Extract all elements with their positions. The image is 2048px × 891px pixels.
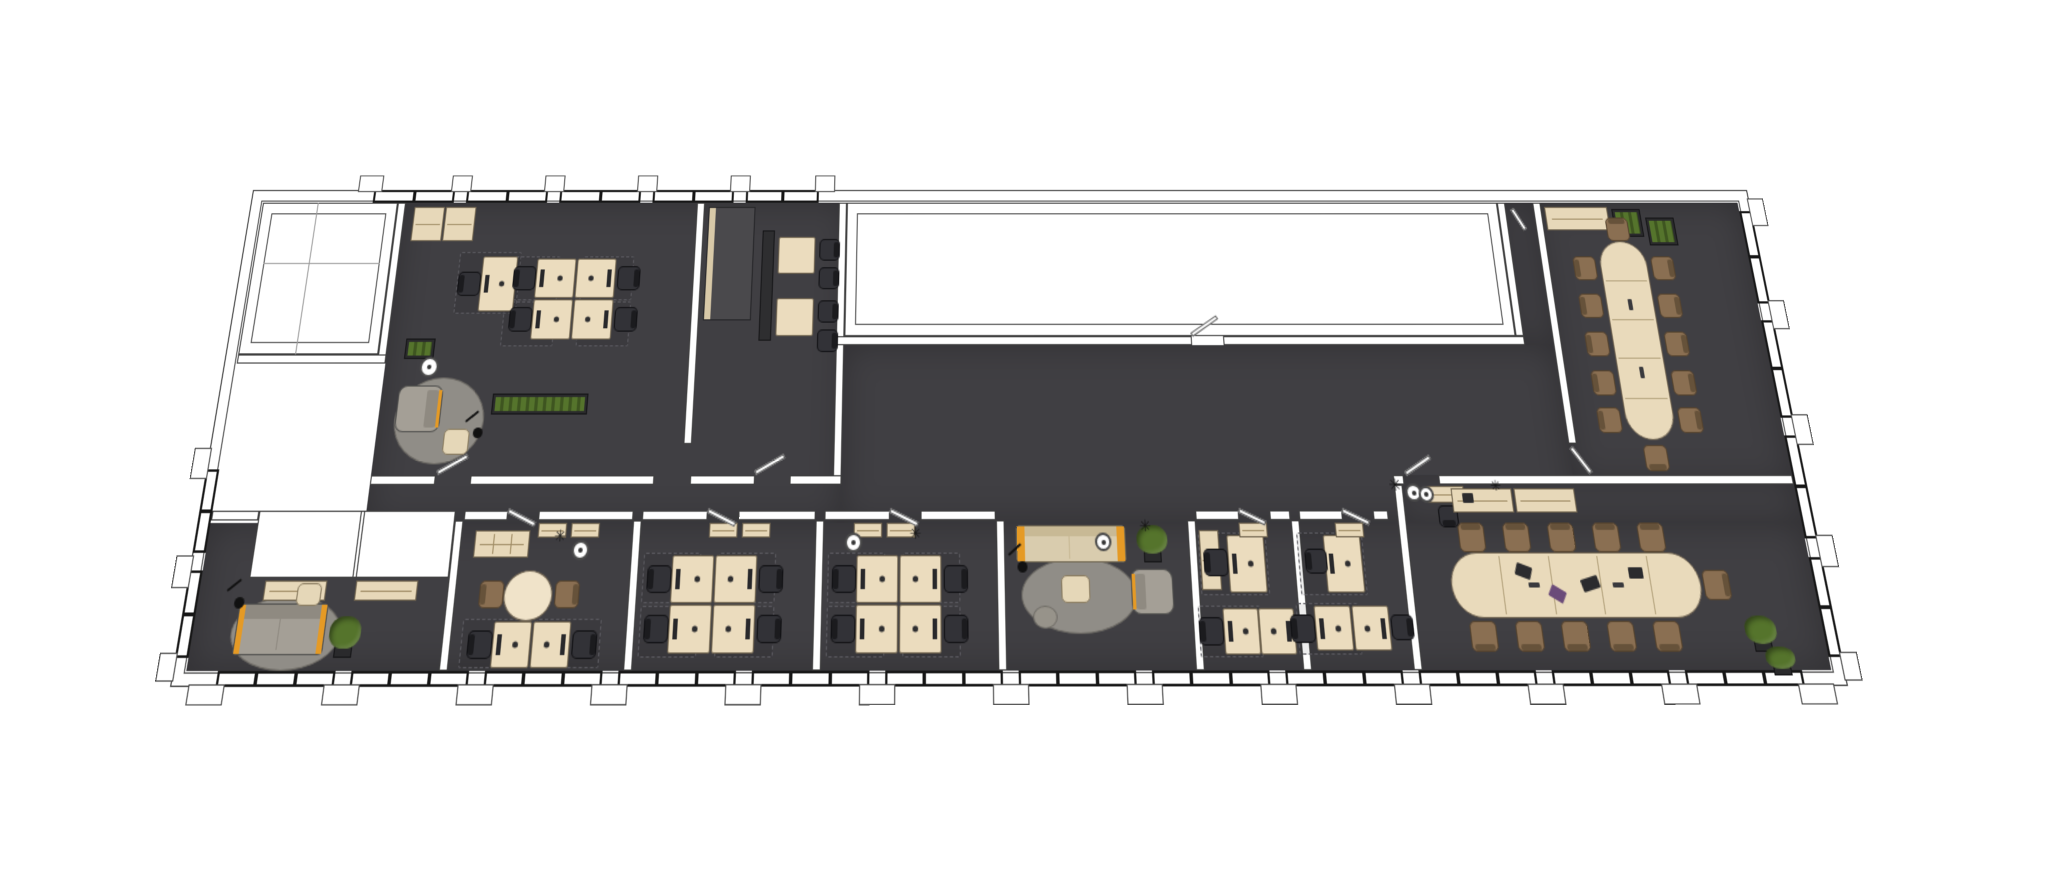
desk-part <box>933 569 937 589</box>
desk <box>713 555 757 603</box>
window-sill <box>1394 684 1433 705</box>
desk-part <box>880 576 886 582</box>
window-part <box>352 674 389 685</box>
desk-part <box>560 634 566 655</box>
desk <box>667 605 712 654</box>
window <box>215 671 335 687</box>
office-chair-part <box>962 619 968 640</box>
cabinet-part <box>1521 500 1570 501</box>
sofa-part <box>238 605 327 620</box>
ceiling-fixture-icon: ✳ <box>1138 518 1153 534</box>
desk <box>534 259 577 299</box>
desk-part <box>496 634 502 655</box>
window <box>751 671 869 687</box>
conference-chair <box>1636 522 1667 552</box>
window-part <box>659 673 695 684</box>
window-sill <box>993 684 1030 705</box>
wall <box>1299 510 1343 520</box>
window-part <box>1498 673 1535 684</box>
window-part <box>655 192 692 200</box>
cabinet-part <box>447 224 471 225</box>
office-chair <box>758 565 783 593</box>
wall <box>738 510 816 520</box>
office-chair <box>646 565 672 593</box>
desk-part <box>1232 554 1238 574</box>
desk <box>574 259 616 299</box>
3d-viewport[interactable]: ✳✳✳✳✳ <box>0 0 2048 891</box>
plant-part <box>327 616 363 648</box>
desk <box>855 604 898 653</box>
office-chair <box>613 307 638 332</box>
desk-part <box>603 310 609 328</box>
conference-chair-part <box>1567 644 1588 651</box>
cabinet <box>1335 523 1365 538</box>
office-floorplan-render: ✳✳✳✳✳ <box>0 0 2048 891</box>
window-part <box>415 192 453 200</box>
conference-table-part <box>1639 366 1645 377</box>
window-part <box>748 192 781 200</box>
desk <box>1226 535 1268 593</box>
wall <box>642 511 708 521</box>
desk-part <box>588 275 594 280</box>
desk-part <box>539 269 545 287</box>
cabinet <box>354 580 419 600</box>
desk <box>1323 535 1366 593</box>
wall <box>1269 510 1291 520</box>
window-part <box>525 674 561 685</box>
window-sill <box>455 684 494 705</box>
window-sill <box>321 684 360 705</box>
desk-part <box>675 569 681 589</box>
sofa-part <box>276 619 282 650</box>
office-chair-part <box>509 310 516 328</box>
window-part <box>1421 673 1458 684</box>
storage-cubbies-part <box>480 544 524 545</box>
desk <box>899 555 941 603</box>
conference-chair <box>1457 523 1487 553</box>
office-chair <box>508 307 533 332</box>
window <box>466 190 548 203</box>
office-chair <box>944 615 969 643</box>
window-part <box>391 674 428 685</box>
cabinet <box>1513 488 1577 512</box>
office-chair <box>944 565 969 593</box>
planter-box <box>1645 218 1679 246</box>
office-chair-part <box>458 275 465 293</box>
office-chair <box>819 239 840 261</box>
laptop <box>1462 493 1474 503</box>
desk-part <box>727 576 733 582</box>
conference-chair-part <box>1592 374 1600 392</box>
office-chair-part <box>832 619 838 640</box>
desk <box>530 299 573 339</box>
conference-chair-part <box>1649 464 1667 470</box>
boardroom-table-part <box>1612 582 1624 587</box>
conference-chair-part <box>1608 219 1625 224</box>
office-chair-part <box>467 634 475 655</box>
pendant-lamp-part <box>1424 492 1429 497</box>
window-part <box>1193 673 1229 684</box>
office-chair <box>643 615 669 643</box>
desk-part <box>692 626 698 632</box>
window-part <box>887 673 923 684</box>
conference-chair <box>1596 407 1624 433</box>
desk <box>571 299 614 339</box>
window-part <box>218 674 255 685</box>
cabinet-part <box>745 530 767 531</box>
cabinet-part <box>416 224 440 225</box>
conference-chair-part <box>1579 297 1587 315</box>
cabinet-part <box>1552 219 1603 220</box>
desk-part <box>557 275 563 280</box>
window-part <box>1687 673 1724 684</box>
office-chair-part <box>1204 552 1211 572</box>
window <box>483 671 602 687</box>
window-sill <box>590 684 628 705</box>
cabinet-part <box>361 591 412 592</box>
office-chair-part <box>774 619 780 640</box>
window-part <box>1365 673 1401 684</box>
office-chair-part <box>833 569 839 589</box>
office-chair <box>1198 617 1224 646</box>
conference-chair <box>1590 370 1617 395</box>
office-chair <box>756 615 782 643</box>
window <box>1152 670 1271 686</box>
wall <box>1223 336 1525 345</box>
ceiling-fixture-icon: ✳ <box>1488 479 1503 494</box>
tall-cabinet <box>703 207 756 321</box>
conference-chair <box>1515 621 1546 652</box>
office-chair <box>832 565 857 593</box>
conference-table-part <box>1605 280 1647 281</box>
planter-box-part <box>407 342 432 356</box>
window-part <box>375 192 413 200</box>
cabinet <box>410 207 445 241</box>
boardroom-table-part <box>1498 556 1507 614</box>
planter-box-part <box>494 397 585 411</box>
office-chair <box>818 267 839 289</box>
desk <box>1313 605 1354 650</box>
desk-part <box>1243 628 1249 634</box>
conference-chair-part <box>1585 335 1593 353</box>
window-part <box>1554 673 1591 684</box>
desk-part <box>745 619 750 640</box>
conference-chair <box>1606 621 1638 652</box>
plant-part <box>1742 616 1779 644</box>
conference-table-part <box>1625 398 1668 399</box>
window-sill <box>724 684 761 705</box>
window <box>1552 670 1672 686</box>
desk <box>856 555 899 603</box>
construction-line <box>263 263 379 264</box>
office-chair-part <box>633 269 639 287</box>
conference-chair-part <box>1505 524 1525 530</box>
desk-part <box>725 626 731 632</box>
conference-chair-part <box>1597 411 1605 430</box>
pouf <box>1033 606 1058 629</box>
floor-lamp <box>223 586 247 609</box>
desk-part <box>912 576 918 582</box>
cabinet-part <box>574 530 596 531</box>
floor-lamp-part <box>472 428 483 439</box>
wall <box>464 511 509 521</box>
pendant-lamp-part <box>578 548 583 553</box>
desk-part <box>1345 560 1351 566</box>
window-part <box>468 192 506 200</box>
conference-chair <box>1591 522 1622 552</box>
window-part <box>965 673 1001 684</box>
wall <box>538 511 634 521</box>
office-chair <box>830 615 855 643</box>
desk-part <box>1271 628 1277 634</box>
interior-outline <box>251 213 387 343</box>
conference-chair-part <box>1475 644 1496 651</box>
armchair <box>394 385 444 432</box>
pendant-lamp-part <box>1411 490 1416 495</box>
conference-table-part <box>1618 358 1661 359</box>
window-part <box>1632 673 1669 684</box>
conference-chair <box>1677 407 1705 433</box>
window <box>885 671 1003 687</box>
window-part <box>698 673 734 684</box>
conference-chair <box>1578 294 1605 318</box>
cabinet <box>442 207 477 241</box>
window-sill <box>358 175 385 192</box>
window-part <box>695 192 732 200</box>
office-chair <box>1390 614 1415 640</box>
office-chair <box>1304 549 1328 574</box>
booth-table <box>778 237 816 274</box>
floor-lamp <box>1007 550 1027 573</box>
window-part <box>601 192 639 200</box>
window <box>559 190 641 203</box>
office-chair-part <box>647 569 654 589</box>
conference-chair-part <box>1595 524 1616 530</box>
window-part <box>257 674 294 685</box>
wall <box>824 510 890 520</box>
desk <box>1222 608 1261 655</box>
window-part <box>831 673 867 684</box>
wall <box>836 336 1192 345</box>
conference-chair-part <box>572 584 579 604</box>
window-sill <box>637 175 658 192</box>
window <box>652 190 734 203</box>
desk <box>529 621 571 668</box>
conference-chair <box>1502 522 1532 552</box>
window <box>746 190 819 203</box>
conference-table-part <box>1627 300 1633 311</box>
conference-chair <box>1469 621 1500 652</box>
desk-part <box>499 281 505 287</box>
pouf <box>295 583 323 606</box>
window-sill <box>544 175 566 192</box>
window-part <box>1099 673 1135 684</box>
office-chair <box>466 630 494 659</box>
planter-box-part <box>1649 221 1675 242</box>
conference-chair <box>1701 570 1733 600</box>
laptop <box>1628 567 1644 578</box>
office-chair-part <box>776 569 782 589</box>
desk-part <box>747 569 752 589</box>
wall <box>470 475 655 485</box>
desk <box>490 621 533 668</box>
office-chair-part <box>630 310 636 328</box>
conference-chair <box>1663 332 1690 357</box>
desk-part <box>672 619 678 640</box>
window <box>1285 670 1404 686</box>
window-part <box>926 673 962 684</box>
cabinet-part <box>712 530 734 531</box>
office-chair <box>817 300 838 322</box>
booth-table <box>775 298 814 336</box>
desk-part <box>1248 561 1254 567</box>
conference-chair-part <box>479 584 487 604</box>
wall <box>920 510 995 520</box>
window-sill <box>1260 684 1298 705</box>
desk-part <box>879 626 885 632</box>
desk-part <box>933 619 938 640</box>
office-chair-part <box>833 271 838 286</box>
cabinet <box>570 523 600 538</box>
window <box>373 190 456 203</box>
conference-chair-part <box>1574 260 1582 277</box>
pendant-lamp-part <box>427 365 432 370</box>
ceiling-fixture-icon: ✳ <box>552 528 568 544</box>
conference-chair-part <box>1550 524 1571 530</box>
conference-chair-part <box>1639 524 1660 530</box>
office-chair <box>616 266 640 290</box>
desk-part <box>1228 621 1234 642</box>
conference-chair <box>478 580 505 608</box>
window-part <box>1593 673 1630 684</box>
window-part <box>620 673 656 684</box>
cabinet <box>1450 488 1514 512</box>
cabinet <box>742 523 771 538</box>
window-sill <box>1527 684 1566 705</box>
desk-part <box>1365 625 1371 631</box>
conference-chair-part <box>1659 644 1680 651</box>
office-chair-part <box>832 333 838 349</box>
conference-chair <box>1656 294 1683 318</box>
planter-box <box>491 394 589 415</box>
office-chair-part <box>832 304 838 320</box>
window-part <box>1060 673 1096 684</box>
conference-chair <box>1604 218 1630 242</box>
plant <box>1764 647 1799 676</box>
cabinet-part <box>1338 530 1360 531</box>
desk-part <box>1329 554 1335 574</box>
window-part <box>1288 673 1324 684</box>
boardroom-table-part <box>1646 556 1657 614</box>
conference-chair-part <box>1460 524 1480 530</box>
window <box>349 671 469 687</box>
conference-chair-part <box>1613 644 1634 651</box>
desk <box>711 604 756 653</box>
window-part <box>1021 673 1057 684</box>
armchair <box>1130 569 1175 615</box>
interior-outline <box>855 213 1504 325</box>
conference-chair <box>1572 256 1598 280</box>
window-sill <box>730 175 751 192</box>
desk-part <box>1335 625 1341 631</box>
wall <box>1373 510 1389 520</box>
window-sill <box>451 175 473 192</box>
desk-part <box>1319 618 1325 639</box>
office-chair-part <box>1200 621 1207 642</box>
ceiling-fixture-icon: ✳ <box>1386 476 1403 493</box>
desk-part <box>554 317 560 323</box>
conference-chair <box>1642 445 1670 471</box>
window-sill <box>185 684 225 705</box>
pendant-lamp-part <box>1101 539 1106 544</box>
window-sill <box>1127 684 1164 705</box>
desk-part <box>860 619 865 640</box>
window-part <box>296 674 333 685</box>
pendant-lamp <box>1095 533 1112 552</box>
window-sill <box>859 684 896 705</box>
wall <box>237 354 387 363</box>
window-part <box>784 192 817 200</box>
window-part <box>1154 673 1190 684</box>
office-chair <box>1290 614 1317 642</box>
window-part <box>564 673 600 684</box>
plant-part <box>1764 647 1798 669</box>
desk-part <box>535 310 541 328</box>
pouf <box>1061 575 1091 603</box>
ceiling-fixture-icon: ✳ <box>908 525 922 541</box>
office-chair <box>456 272 481 296</box>
desk-part <box>543 641 549 648</box>
desk-part <box>912 626 918 632</box>
sofa-part <box>1069 537 1071 559</box>
conference-chair <box>1546 522 1577 552</box>
desk-part <box>1380 618 1387 639</box>
floor-lamp-part <box>1017 561 1027 572</box>
floor-lamp-part <box>233 597 245 609</box>
desk <box>899 604 942 653</box>
window-sill <box>1661 683 1701 704</box>
conference-chair <box>1650 256 1677 280</box>
boardroom-table <box>1447 552 1707 618</box>
window-part <box>508 192 546 200</box>
office-chair-part <box>589 634 596 655</box>
desk-part <box>860 569 865 589</box>
window-sill <box>1798 683 1838 704</box>
office-chair-part <box>513 269 520 287</box>
window-part <box>1460 673 1497 684</box>
desk-part <box>606 269 611 287</box>
office-chair-part <box>644 619 651 640</box>
window-part <box>486 674 522 685</box>
window-sill <box>815 175 836 192</box>
office-chair <box>817 329 838 352</box>
sofa <box>232 603 329 655</box>
office-chair <box>512 266 537 290</box>
pendant-lamp-part <box>851 540 855 545</box>
window-part <box>793 673 829 684</box>
storage-cubbies <box>473 530 531 557</box>
window-part <box>1232 673 1268 684</box>
window-part <box>430 674 467 685</box>
sofa-part <box>1116 526 1125 561</box>
conference-chair <box>1652 621 1684 652</box>
office-chair <box>571 630 598 659</box>
plant <box>326 616 363 658</box>
office-chair-part <box>1406 618 1414 636</box>
window <box>617 671 736 687</box>
window-part <box>561 192 599 200</box>
desk-part <box>695 576 701 582</box>
